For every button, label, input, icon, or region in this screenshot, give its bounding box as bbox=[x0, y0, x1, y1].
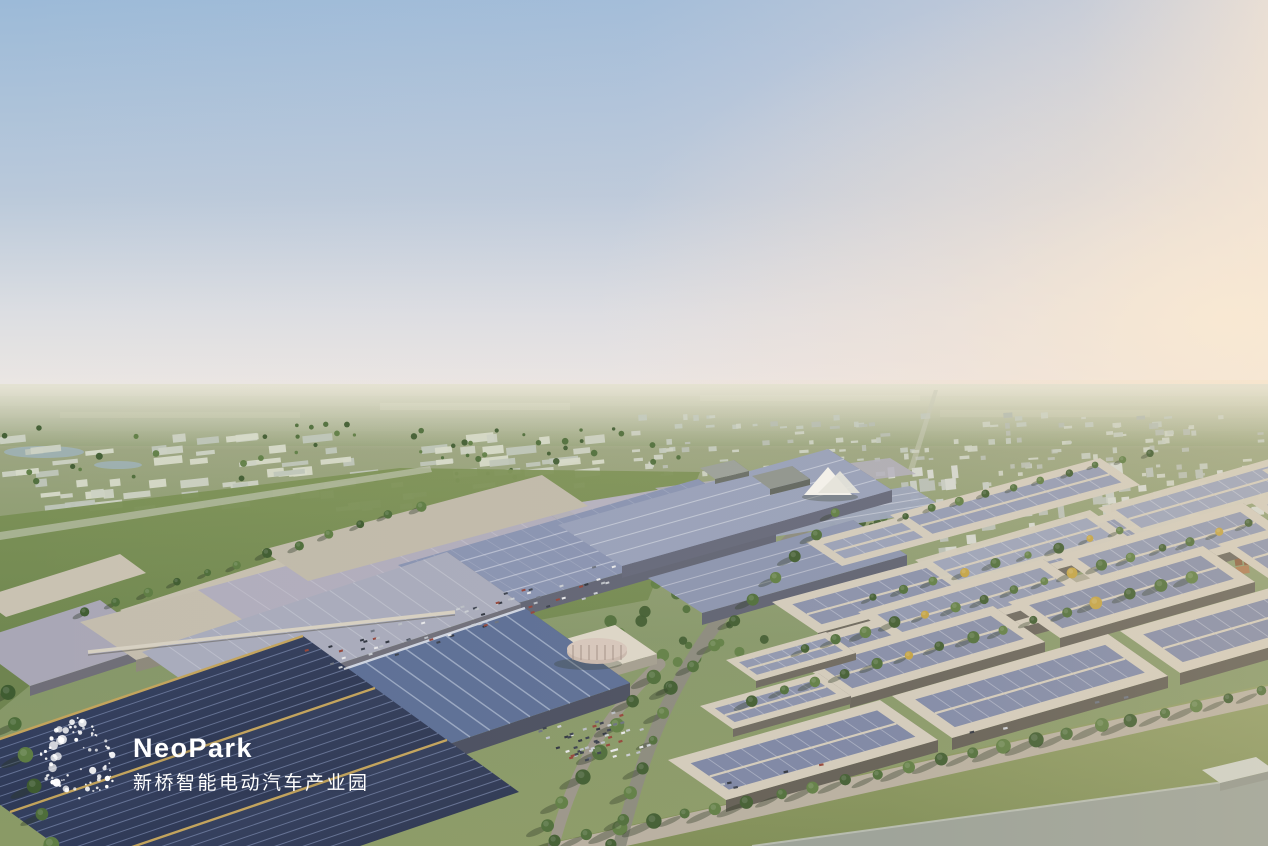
scene-svg bbox=[0, 0, 1268, 846]
warm-light-overlay bbox=[0, 380, 1268, 846]
neopark-aerial-rendering: NeoPark 新桥智能电动汽车产业园 bbox=[0, 0, 1268, 846]
